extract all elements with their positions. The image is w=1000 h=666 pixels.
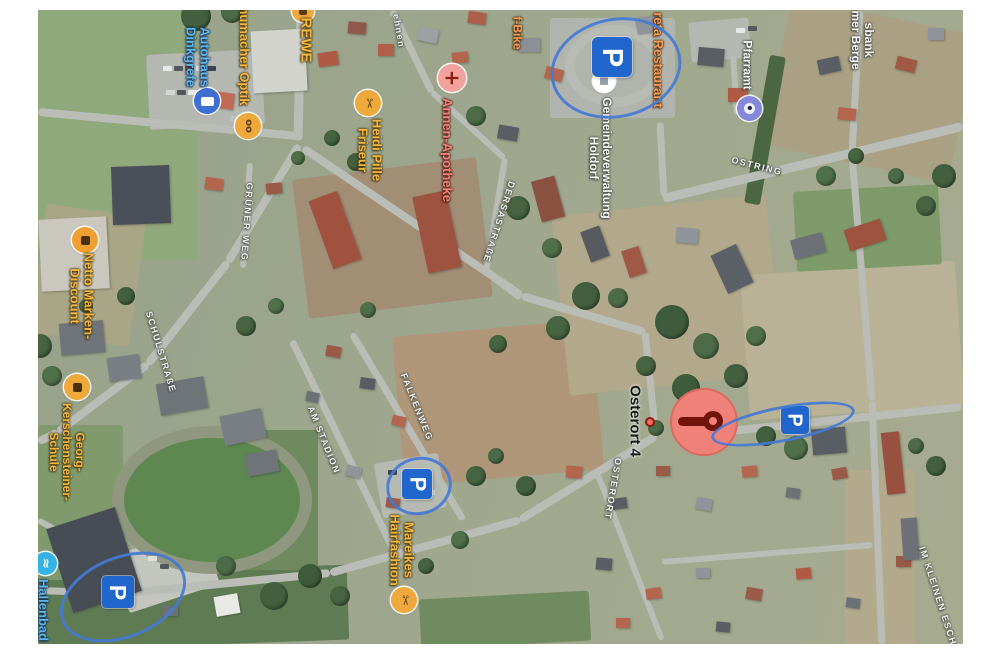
parked-car (748, 26, 757, 31)
tree (360, 302, 376, 318)
tree (655, 305, 689, 339)
building (901, 517, 920, 560)
parked-car (174, 66, 183, 71)
building (716, 621, 731, 632)
poi-label-netto-marken-discount: Netto Marken-Discount (67, 253, 96, 340)
building (213, 593, 240, 617)
poi-label-annen-apotheke: Annen-Apotheke (440, 98, 454, 202)
poi-label-line: Hallenbad (38, 579, 50, 641)
poi-label-line: sbank (862, 10, 875, 69)
poi-icon-pfarramt-church-icon[interactable]: • (737, 96, 762, 121)
tree (888, 168, 904, 184)
poi-label-line: Dinkgrefe (183, 27, 197, 87)
terrain-patch (740, 261, 963, 421)
building (697, 47, 724, 67)
tree (908, 438, 924, 454)
building (785, 487, 800, 499)
poi-label-rewe: REWE (297, 18, 314, 63)
building (417, 26, 439, 44)
poi-label-line: REWE (297, 18, 314, 63)
road-segment (657, 122, 668, 196)
tree (330, 586, 350, 606)
satellite-map[interactable]: ehnenGRÜNER WEGSCHULSTRAßEDERSASTRAßEOST… (38, 10, 963, 644)
poi-label-line: Hairfashion (387, 514, 401, 586)
building (928, 28, 944, 40)
building (452, 51, 469, 63)
poi-label-line: Kerschensteiner- (59, 403, 72, 501)
poi-label-line: mer Berge (849, 10, 862, 69)
building (305, 391, 320, 403)
tree (848, 148, 864, 164)
tree (268, 298, 284, 314)
building (742, 465, 758, 477)
tree (516, 476, 536, 496)
tree (489, 335, 507, 353)
poi-label-line: Friseur (355, 119, 369, 181)
tree (488, 448, 504, 464)
tree (746, 326, 766, 346)
building (656, 466, 670, 476)
tree (324, 130, 340, 146)
icon-glyph: + (442, 70, 462, 87)
tree (38, 334, 52, 358)
parked-car (177, 90, 186, 95)
poi-label-line: Schule (46, 403, 59, 501)
tree (117, 287, 135, 305)
icon-glyph: ✂ (362, 98, 375, 109)
building (359, 377, 375, 390)
poi-icon-apotheke-cross-icon[interactable]: + (438, 64, 466, 92)
icon-glyph: ≈ (39, 558, 52, 569)
tree (291, 151, 305, 165)
tree (916, 196, 936, 216)
poi-label-osterort-4: Osterort 4 (626, 385, 643, 457)
building (531, 176, 565, 223)
building (204, 177, 223, 191)
building (106, 354, 141, 382)
poi-label-line: Heidi Pille (369, 119, 383, 181)
icon-glyph: • (743, 104, 755, 112)
building (696, 568, 710, 578)
icon-shape (81, 236, 90, 245)
location-pin-hole (709, 417, 717, 425)
road-segment (662, 542, 872, 565)
tree (572, 282, 600, 310)
poi-label-line: Mareikes (401, 514, 415, 586)
icon-glyph: ✂ (398, 595, 411, 606)
poi-label-schumacher-optik: Schumacher Optik (237, 10, 251, 105)
tree (418, 558, 434, 574)
tree (236, 316, 256, 336)
tree (466, 466, 486, 486)
building (596, 557, 613, 570)
tree (693, 333, 719, 359)
building (156, 376, 209, 416)
poi-label-line: Autohaus (197, 27, 211, 87)
street-label-im-kleinen-esch: IM KLEINEN ESCH (917, 545, 958, 644)
poi-icon-optician-glasses-icon[interactable]: oo (235, 113, 261, 139)
building (845, 597, 860, 609)
location-marker-dot (645, 417, 655, 427)
poi-label-line: Schumacher Optik (237, 10, 251, 105)
tree (816, 166, 836, 186)
poi-icon-hallenbad-swim-icon[interactable]: ≈ (38, 552, 57, 575)
poi-label-line: Georg- (73, 403, 86, 501)
building (317, 51, 339, 68)
poi-icon-friseur-scissors-icon[interactable]: ✂ (355, 90, 381, 116)
tree (451, 531, 469, 549)
poi-label-autohaus-dinkgrefe: AutohausDinkgrefe (183, 27, 212, 87)
poi-label-line: Netto Marken- (81, 253, 95, 340)
tree (216, 556, 236, 576)
building (345, 464, 362, 479)
tree (260, 582, 288, 610)
scanned-map-page: ehnenGRÜNER WEGSCHULSTRAßEDERSASTRAßEOST… (0, 0, 1000, 666)
tree (42, 366, 62, 386)
poi-icon-autohaus-car-icon[interactable] (194, 88, 220, 114)
poi-label-line: Annen-Apotheke (440, 98, 454, 202)
building (111, 165, 171, 225)
building (796, 567, 812, 579)
poi-label-pfarramt: Pfarramt (740, 40, 753, 89)
poi-icon-school-icon[interactable] (64, 374, 90, 400)
poi-label-mareikes-hairfashion: MareikesHairfashion (387, 514, 416, 586)
building (467, 11, 486, 25)
parked-car (166, 90, 175, 95)
building (695, 497, 713, 512)
poi-icon-hairfashion-scissors-icon[interactable]: ✂ (391, 587, 417, 613)
poi-label-georg-kerschensteiner-schule: Georg-Kerschensteiner-Schule (46, 403, 86, 501)
icon-shape (201, 97, 214, 106)
poi-icon-netto-shop-icon[interactable] (72, 227, 98, 253)
poi-label-hallenbad: Hallenbad (38, 579, 50, 641)
building (378, 44, 394, 56)
building (325, 345, 342, 358)
poi-label-heidi-pille-friseur: Heidi PilleFriseur (355, 119, 384, 181)
icon-shape (73, 383, 82, 392)
building (497, 124, 519, 141)
tree (932, 164, 956, 188)
terrain-patch (419, 591, 591, 644)
tree (608, 288, 628, 308)
building (566, 465, 583, 478)
icon-glyph: oo (243, 119, 253, 133)
building (745, 587, 763, 602)
tree (546, 316, 570, 340)
poi-label-line: f-Bike (510, 16, 523, 49)
poi-label-volksbank-dammer-berge: sbankmer Berge (849, 10, 875, 69)
tree (298, 564, 322, 588)
poi-label-line: Discount (67, 253, 81, 340)
building (837, 107, 856, 121)
tree (636, 356, 656, 376)
parked-car (163, 66, 172, 71)
building (265, 182, 282, 195)
tree (542, 238, 562, 258)
poi-label-f-bike: f-Bike (510, 16, 523, 49)
icon-shape (299, 10, 307, 15)
tree (724, 364, 748, 388)
building (616, 618, 630, 628)
poi-label-line: Pfarramt (740, 40, 753, 89)
building (645, 587, 661, 600)
building (675, 227, 698, 244)
poi-label-line: Osterort 4 (626, 385, 643, 457)
building (348, 21, 367, 35)
tree (466, 106, 486, 126)
street-label-schulstrasse: SCHULSTRAßE (144, 310, 178, 394)
tree (926, 456, 946, 476)
building (391, 415, 407, 428)
parked-car (736, 28, 745, 33)
